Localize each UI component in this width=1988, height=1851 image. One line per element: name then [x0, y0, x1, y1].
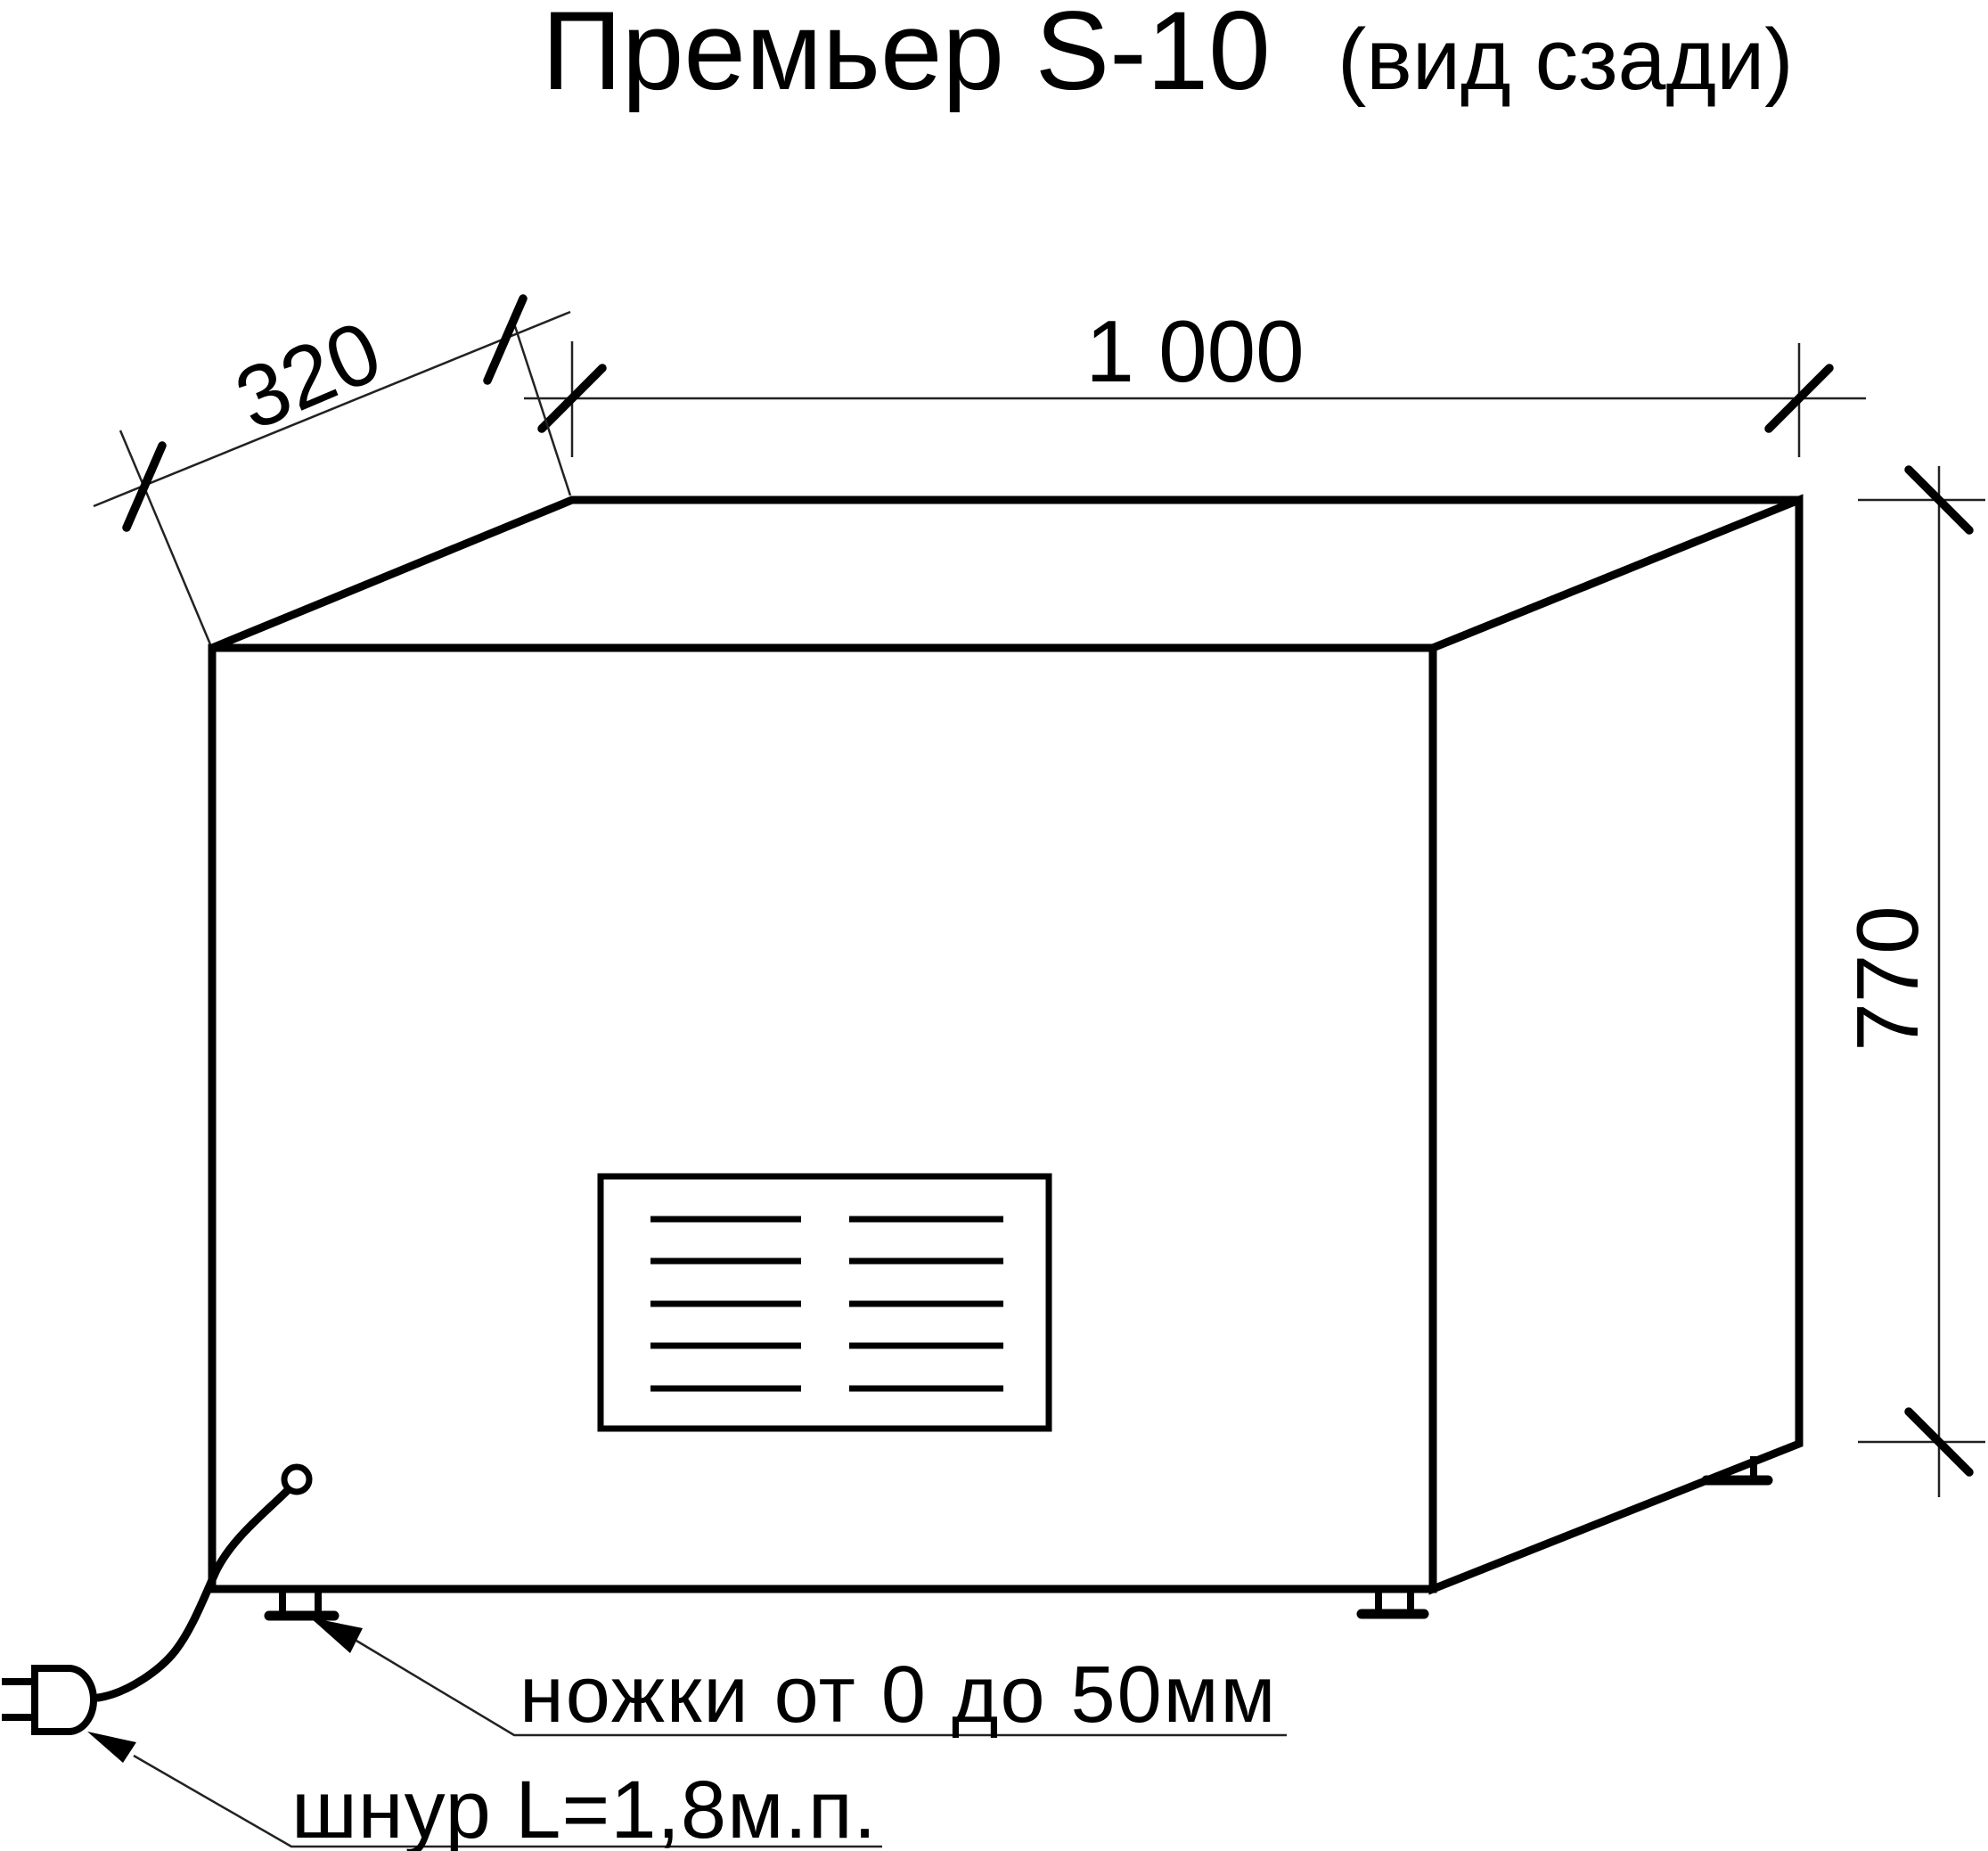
cord-note: шнур L=1,8м.п. [291, 1765, 877, 1851]
page-title: Премьер S-10 [542, 0, 1271, 113]
technical-drawing-svg: Премьер S-10 (вид сзади) [0, 0, 1988, 1851]
dimension-width-label: 1 000 [1085, 302, 1304, 400]
ventilation-grille [601, 1176, 1049, 1429]
box-front-face [212, 648, 1433, 1589]
page-title-suffix: (вид сзади) [1338, 11, 1794, 108]
legs-note: ножки от 0 до 50мм [519, 1650, 1277, 1740]
drawing-canvas: Премьер S-10 (вид сзади) [0, 0, 1988, 1851]
plug-body [35, 1668, 94, 1732]
box-right-face [1433, 500, 1799, 1589]
dimension-height-label: 770 [1838, 905, 1936, 1052]
